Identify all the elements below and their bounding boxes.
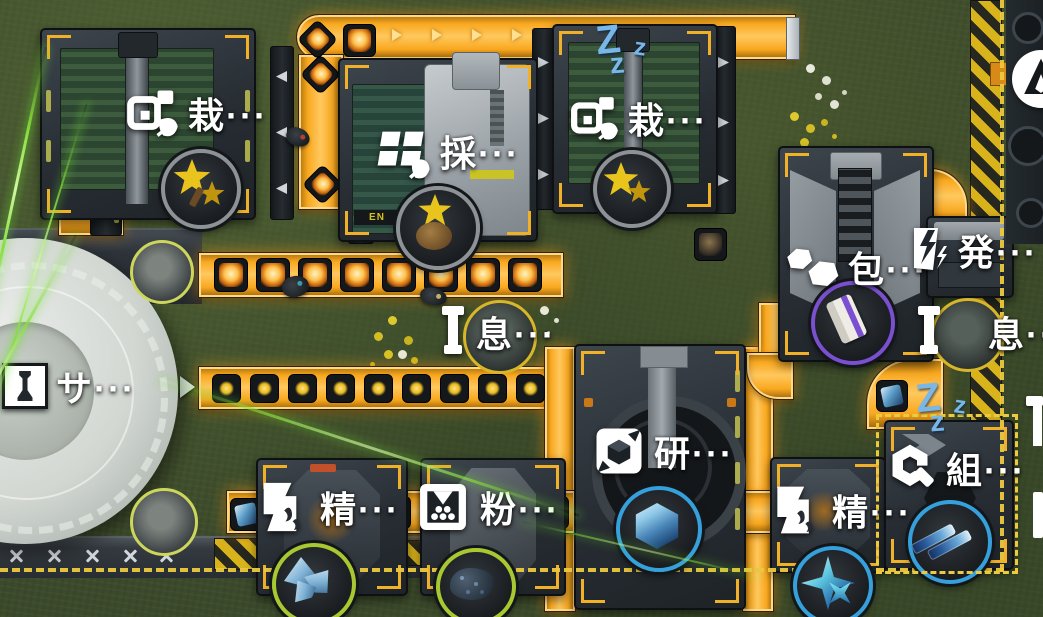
flower-patch-white (806, 64, 815, 73)
label-harvester: 採··· (374, 122, 520, 180)
label-pylon-left: 息··· (438, 304, 556, 360)
flower-patch-yellow (388, 316, 397, 325)
factory-map: EN (0, 0, 1043, 617)
building-label: 組··· (946, 442, 1026, 494)
assemble-icon (882, 440, 938, 496)
package-icon (786, 240, 840, 294)
gantry-motor (118, 32, 158, 58)
building-label: サ··· (56, 360, 136, 412)
belt-item-flower (466, 258, 500, 292)
flower-patch-white (398, 350, 407, 359)
building-label: 栽··· (628, 92, 708, 144)
belt-item-bud (516, 374, 545, 403)
item-badge-blue-cube (616, 486, 702, 572)
label-icon-partial (1033, 492, 1043, 538)
belt-item (694, 228, 727, 261)
item-badge-ore-rock (436, 548, 516, 617)
building-label: 研··· (654, 425, 734, 477)
dome-port[interactable] (130, 240, 194, 304)
building-label: 息··· (476, 306, 556, 358)
status-light (310, 464, 336, 472)
shaper-icon (592, 424, 646, 478)
belt-item-flower (214, 258, 248, 292)
belt-direction-arrow (472, 29, 482, 41)
belt-item-bud (364, 374, 393, 403)
edge-knob (1008, 126, 1043, 166)
dome-port[interactable] (130, 488, 198, 556)
label-shaper: 研··· (592, 424, 734, 478)
label-pylon-right: 息··· (914, 304, 1043, 360)
flower-patch-yellow (790, 112, 799, 121)
status-light (584, 398, 593, 407)
belt-direction-arrow (432, 29, 442, 41)
pylon-icon (438, 304, 468, 360)
harvester-clamp (452, 52, 500, 90)
label-silo: サ··· (2, 360, 136, 412)
item-badge-star-crystal (793, 546, 873, 617)
pylon-icon-partial (1033, 404, 1042, 446)
idle-indicator: Z z z (916, 376, 986, 442)
belt-item-bud (250, 374, 279, 403)
building-label: 粉··· (480, 481, 560, 533)
label-refiner-left: 精··· (254, 478, 400, 536)
cultivate-icon (126, 86, 180, 140)
idle-indicator: Z z z (596, 18, 666, 84)
belt-item-bud (402, 374, 431, 403)
belt-item-flower (382, 258, 416, 292)
item-badge-crystal-shards (272, 543, 356, 617)
label-assembler: 組··· (882, 440, 1026, 496)
cultivate-icon (570, 93, 620, 143)
machine-decal: EN (354, 210, 400, 225)
label-cultivator-2: 栽··· (570, 92, 708, 144)
label-generator: 発··· (906, 224, 1038, 276)
belt-item-bud (478, 374, 507, 403)
belt-item-flower (340, 258, 374, 292)
greenhouse-bed (60, 48, 126, 190)
belt-item-bud (212, 374, 241, 403)
belt-item-crystal (876, 380, 908, 412)
status-light (727, 398, 736, 407)
road-mark (84, 548, 100, 564)
belt-direction-arrow (392, 29, 402, 41)
shaper-arm-base (640, 346, 688, 368)
item-badge-component-rods (908, 500, 992, 584)
belt-item-bud (288, 374, 317, 403)
belt-direction-arrow (512, 29, 522, 41)
road-mark (122, 548, 138, 564)
road-mark (46, 548, 62, 564)
road-mark (8, 548, 24, 564)
power-icon (906, 224, 950, 276)
item-badge-yellow-flower (161, 149, 241, 229)
belt-item-flower (343, 24, 376, 57)
building-label: 発··· (958, 224, 1038, 276)
edge-knob (1012, 12, 1043, 44)
belt-item-bud (326, 374, 355, 403)
belt-item-bud (440, 374, 469, 403)
item-badge-yellow-flower (593, 150, 671, 228)
building-label: 精··· (320, 481, 400, 533)
belt-start-arrow (180, 376, 195, 398)
pylon-icon (914, 304, 944, 360)
harvest-icon (374, 122, 432, 180)
building-label: 栽··· (188, 87, 268, 139)
belt-end-cap (786, 17, 800, 60)
crush-icon (414, 478, 472, 536)
building-label: 採··· (440, 125, 520, 177)
label-crusher: 粉··· (414, 478, 560, 536)
silo-icon (2, 363, 48, 409)
refine-icon (254, 478, 312, 536)
building-label: 息··· (988, 306, 1043, 358)
refine-icon (768, 482, 824, 538)
item-badge-flower-bulb (396, 186, 480, 270)
label-cultivator-1: 栽··· (126, 86, 268, 140)
belt-item-flower (508, 258, 542, 292)
